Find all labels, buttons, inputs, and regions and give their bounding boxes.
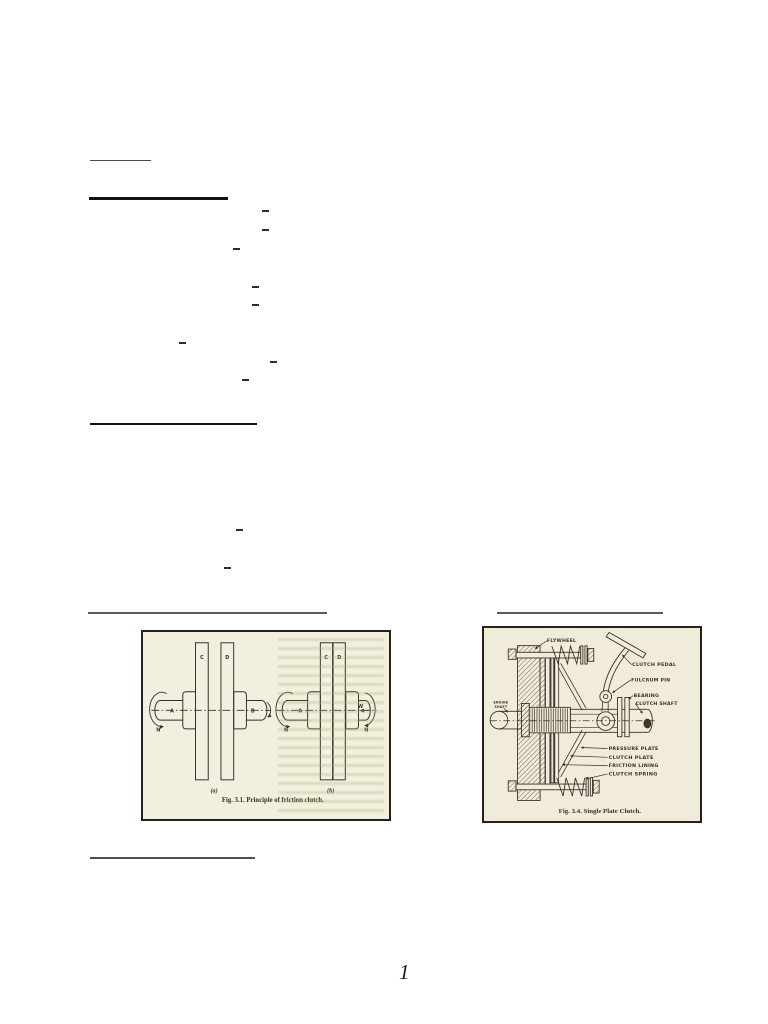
fulcrum-pin-label: FULCRUM PIN xyxy=(631,677,670,683)
text-dash xyxy=(233,248,240,250)
heading-underline-5 xyxy=(497,612,663,614)
disc-d xyxy=(221,643,234,780)
text-dash xyxy=(224,567,231,569)
text-dash xyxy=(242,379,249,381)
bolt-head xyxy=(508,781,516,791)
disc-d xyxy=(333,643,345,780)
heading-underline-4 xyxy=(88,612,327,614)
heading-underline-3 xyxy=(90,423,257,426)
flywheel-label: FLYWHEEL xyxy=(547,638,576,644)
force-w-label: W xyxy=(358,704,364,710)
bearing-race xyxy=(617,698,621,737)
figure-caption: Fig. 3.1. Principle of friction clutch. xyxy=(222,797,324,804)
text-dash xyxy=(270,361,277,363)
disc-d-label: D xyxy=(337,655,341,661)
engine-shaft-label: SHAFT xyxy=(495,705,508,709)
page-number: 1 xyxy=(399,960,410,985)
splined-hub xyxy=(529,707,570,732)
speed-n-label: N xyxy=(156,727,160,733)
speed-n-label: N xyxy=(284,727,288,733)
nut xyxy=(588,649,594,662)
single-plate-clutch-diagram: FLYWHEEL CLUTCH PEDAL FULCRUM PIN BEARIN… xyxy=(484,628,700,821)
text-dash xyxy=(262,210,269,212)
clutch-pedal-label: CLUTCH PEDAL xyxy=(632,662,676,668)
figure-principle-of-friction-clutch: C D A B N C D A W N N (a) (b) Fig. 3.1. … xyxy=(141,630,391,821)
engine-shaft xyxy=(490,711,521,729)
bearing-label: BEARING xyxy=(634,693,660,699)
rotation-arrow xyxy=(150,692,167,726)
heading-underline-6 xyxy=(90,857,255,859)
pressure-plate-label: PRESSURE PLATE xyxy=(609,746,659,752)
text-dash xyxy=(252,286,259,288)
washer xyxy=(581,646,583,664)
bolt-shank xyxy=(516,784,587,790)
hub-collar xyxy=(521,703,529,736)
clutch-shaft-label: CLUTCH SHAFT xyxy=(636,701,679,707)
release-yoke xyxy=(597,702,615,730)
clutch-spring-label: CLUTCH SPRING xyxy=(609,771,658,777)
shaft-a-label: A xyxy=(170,708,174,714)
figure-caption: Fig. 3.4. Single Plate Clutch. xyxy=(559,808,642,815)
figure-single-plate-clutch: FLYWHEEL CLUTCH PEDAL FULCRUM PIN BEARIN… xyxy=(482,626,702,823)
bearing-race xyxy=(625,698,629,737)
bolt-head xyxy=(508,649,516,659)
heading-underline-2 xyxy=(89,197,228,200)
disc-c xyxy=(196,643,209,780)
fulcrum xyxy=(600,691,612,703)
sublabel-a: (a) xyxy=(211,788,218,795)
friction-clutch-diagram: C D A B N C D A W N N (a) (b) Fig. 3.1. … xyxy=(143,632,389,819)
disc-c-label: C xyxy=(200,655,204,661)
clutch-plate-label: CLUTCH PLATE xyxy=(609,755,654,761)
diagram-b xyxy=(276,643,377,780)
nut xyxy=(593,780,599,793)
disc-d-label: D xyxy=(225,655,229,661)
disc-c-label: C xyxy=(324,655,328,661)
shaft-a-label: A xyxy=(298,708,302,714)
document-page: C D A B N C D A W N N (a) (b) Fig. 3.1. … xyxy=(0,0,768,1024)
washer xyxy=(586,778,588,796)
bolt-shank xyxy=(516,652,581,658)
text-dash xyxy=(262,229,269,231)
washer xyxy=(590,778,592,796)
speed-n-label: N xyxy=(364,727,368,733)
text-dash xyxy=(236,529,243,531)
friction-lining-label: FRICTION LINING xyxy=(609,763,659,769)
heading-underline-1 xyxy=(90,160,151,161)
rotation-arrow xyxy=(276,692,293,726)
text-dash xyxy=(252,304,259,306)
engine-shaft-label: ENGINE xyxy=(494,700,509,704)
text-dash xyxy=(179,342,186,344)
washer xyxy=(585,646,587,664)
shaft-b-label: B xyxy=(251,708,255,714)
sublabel-b: (b) xyxy=(327,788,334,795)
disc-c xyxy=(320,643,332,780)
